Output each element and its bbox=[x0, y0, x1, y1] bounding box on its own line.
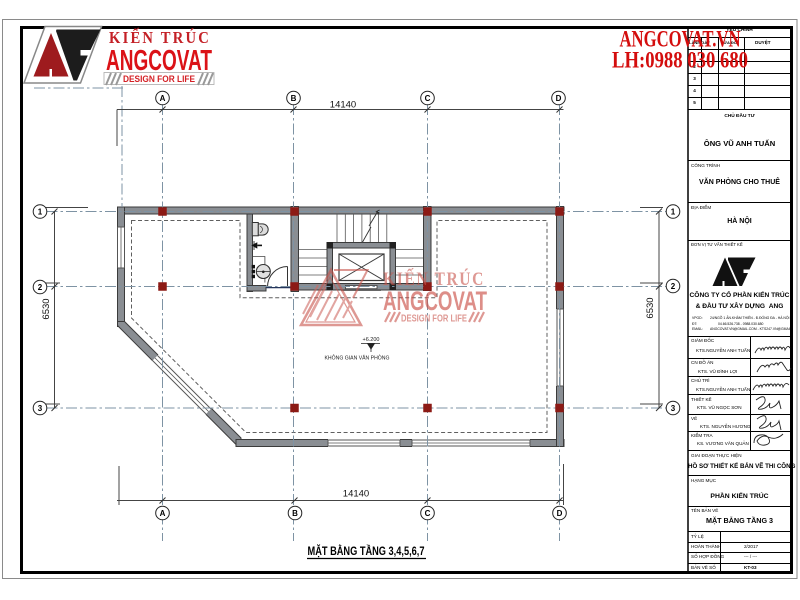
svg-text:3: 3 bbox=[38, 404, 43, 413]
svg-text:A: A bbox=[160, 509, 166, 518]
svg-text:2: 2 bbox=[671, 282, 676, 291]
svg-text:B: B bbox=[292, 509, 298, 518]
svg-text:C: C bbox=[425, 94, 431, 103]
svg-text:ANGCOVAT: ANGCOVAT bbox=[383, 286, 487, 316]
svg-text:DESIGN FOR LIFE: DESIGN FOR LIFE bbox=[401, 314, 467, 325]
svg-text:6530: 6530 bbox=[645, 297, 656, 318]
svg-text:14140: 14140 bbox=[343, 489, 369, 500]
svg-text:1: 1 bbox=[38, 208, 43, 217]
svg-text:B: B bbox=[291, 94, 297, 103]
svg-text:3: 3 bbox=[671, 404, 676, 413]
svg-text:14140: 14140 bbox=[330, 100, 356, 111]
svg-text:DESIGN FOR LIFE: DESIGN FOR LIFE bbox=[123, 74, 195, 85]
svg-text:1: 1 bbox=[671, 208, 676, 217]
svg-text:C: C bbox=[425, 509, 431, 518]
svg-text:KHÔNG GIAN VĂN PHÒNG: KHÔNG GIAN VĂN PHÒNG bbox=[325, 355, 390, 362]
svg-text:KIẾN TRÚC: KIẾN TRÚC bbox=[109, 28, 211, 47]
svg-text:2: 2 bbox=[38, 283, 43, 292]
svg-text:ANGCOVAT: ANGCOVAT bbox=[106, 45, 212, 77]
svg-text:MẶT BẰNG TẦNG 3,4,5,6,7: MẶT BẰNG TẦNG 3,4,5,6,7 bbox=[308, 545, 425, 558]
svg-text:KIẾN TRÚC: KIẾN TRÚC bbox=[383, 268, 485, 290]
svg-text:+6.200: +6.200 bbox=[363, 337, 380, 343]
svg-text:6530: 6530 bbox=[41, 298, 52, 319]
svg-text:A: A bbox=[160, 94, 166, 103]
svg-text:D: D bbox=[556, 94, 562, 103]
svg-text:D: D bbox=[557, 509, 563, 518]
